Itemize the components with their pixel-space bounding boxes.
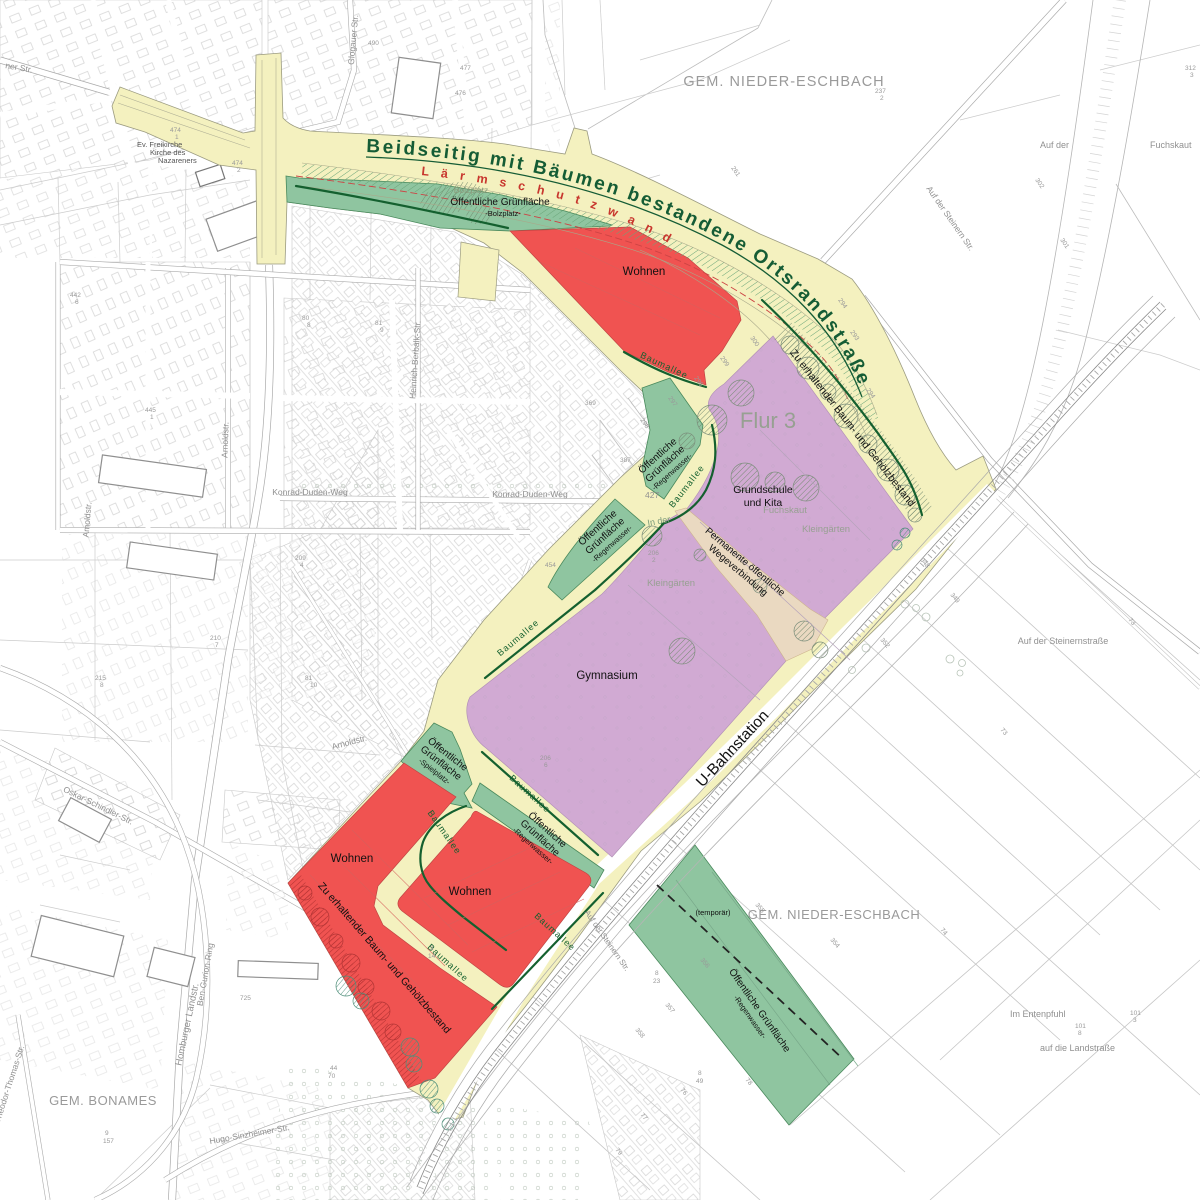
svg-text:442: 442 (70, 292, 81, 299)
svg-text:476: 476 (455, 90, 466, 97)
svg-text:Arnoldstr.: Arnoldstr. (219, 422, 230, 458)
svg-text:215: 215 (95, 675, 106, 682)
svg-text:206: 206 (648, 550, 659, 557)
svg-text:Flur 3: Flur 3 (740, 408, 796, 433)
svg-text:8: 8 (655, 970, 659, 977)
svg-text:Kleingärten: Kleingärten (647, 578, 695, 589)
svg-text:10: 10 (310, 682, 318, 689)
svg-text:474: 474 (170, 127, 181, 134)
svg-text:Konrad-Duden-Weg: Konrad-Duden-Weg (492, 489, 568, 499)
svg-text:GEM. BONAMES: GEM. BONAMES (49, 1093, 157, 1108)
svg-text:427: 427 (645, 490, 659, 500)
svg-text:210: 210 (210, 635, 221, 642)
svg-text:3: 3 (1133, 1017, 1137, 1024)
svg-text:8: 8 (100, 682, 104, 689)
svg-text:6: 6 (544, 762, 548, 769)
svg-text:454: 454 (545, 562, 556, 569)
svg-text:6: 6 (75, 299, 79, 306)
svg-text:Auf der Steinernstraße: Auf der Steinernstraße (1018, 636, 1109, 646)
svg-text:Nazareners: Nazareners (158, 156, 197, 165)
svg-text:14: 14 (428, 953, 436, 960)
svg-text:Wohnen: Wohnen (449, 886, 492, 898)
svg-text:Fuchskaut: Fuchskaut (1150, 140, 1192, 150)
svg-text:auf die Landstraße: auf die Landstraße (1040, 1043, 1115, 1053)
svg-text:Konrad-Duden-Weg: Konrad-Duden-Weg (272, 487, 348, 497)
svg-text:(temporär): (temporär) (695, 908, 731, 917)
svg-text:81: 81 (375, 320, 383, 327)
svg-text:Wohnen: Wohnen (623, 266, 666, 278)
svg-text:369: 369 (585, 400, 596, 407)
svg-text:81: 81 (305, 675, 313, 682)
svg-text:2: 2 (237, 167, 241, 174)
svg-text:9: 9 (380, 327, 384, 334)
svg-text:3: 3 (430, 945, 434, 952)
svg-text:9: 9 (105, 1130, 109, 1137)
svg-text:Gymnasium: Gymnasium (576, 670, 637, 682)
svg-text:101: 101 (1075, 1023, 1086, 1030)
svg-text:Öffentliche Grünfläche: Öffentliche Grünfläche (450, 196, 550, 208)
svg-text:2: 2 (880, 95, 884, 102)
svg-text:1: 1 (150, 414, 154, 421)
svg-text:387: 387 (620, 457, 631, 464)
svg-text:44: 44 (330, 1065, 338, 1072)
svg-text:23: 23 (653, 978, 661, 985)
svg-text:237: 237 (875, 88, 886, 95)
svg-text:GEM. NIEDER-ESCHBACH: GEM. NIEDER-ESCHBACH (748, 907, 921, 922)
svg-text:8: 8 (1078, 1030, 1082, 1037)
svg-text:80: 80 (302, 315, 310, 322)
svg-text:-Bolzplatz-: -Bolzplatz- (485, 209, 521, 218)
svg-text:70: 70 (328, 1073, 336, 1080)
svg-text:Grundschule: Grundschule (733, 484, 793, 496)
svg-text:490: 490 (368, 40, 379, 47)
svg-text:Im Entenpfuhl: Im Entenpfuhl (1010, 1009, 1066, 1019)
svg-text:GEM. NIEDER-ESCHBACH: GEM. NIEDER-ESCHBACH (683, 74, 884, 90)
svg-text:2: 2 (652, 557, 656, 564)
svg-text:49: 49 (696, 1078, 704, 1085)
svg-text:Auf der: Auf der (1040, 140, 1069, 150)
svg-text:209: 209 (295, 555, 306, 562)
svg-text:445: 445 (145, 407, 156, 414)
svg-text:101: 101 (1130, 1010, 1141, 1017)
svg-text:Wohnen: Wohnen (331, 853, 374, 865)
svg-text:7: 7 (215, 642, 219, 649)
svg-text:477: 477 (460, 65, 471, 72)
svg-text:1: 1 (175, 134, 179, 141)
svg-text:8: 8 (307, 322, 311, 329)
svg-text:Fuchskaut: Fuchskaut (763, 505, 807, 516)
svg-text:3: 3 (1190, 72, 1194, 79)
svg-text:4: 4 (300, 562, 304, 569)
svg-text:Kleingärten: Kleingärten (802, 524, 850, 535)
svg-text:Bolzplatz: Bolzplatz (454, 185, 489, 195)
svg-text:725: 725 (240, 995, 251, 1002)
svg-text:206: 206 (540, 755, 551, 762)
svg-text:157: 157 (103, 1138, 114, 1145)
svg-text:8: 8 (698, 1070, 702, 1077)
svg-text:312: 312 (1185, 65, 1196, 72)
svg-text:474: 474 (232, 160, 243, 167)
